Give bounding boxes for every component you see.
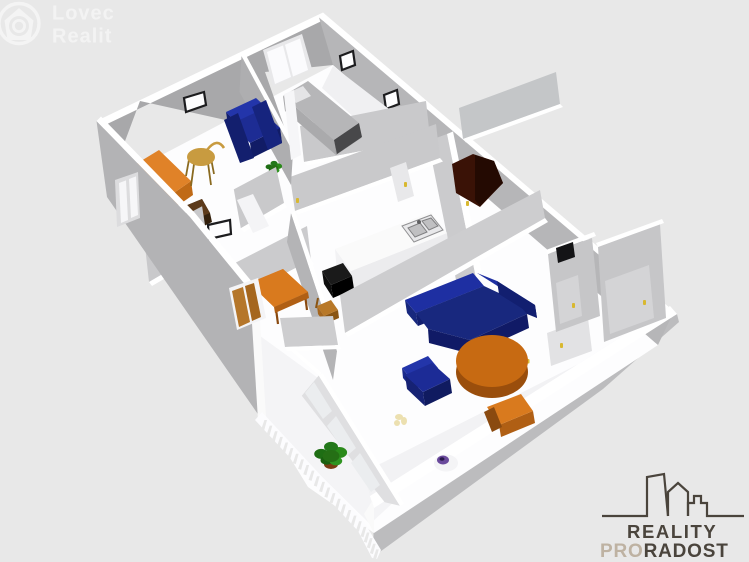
- svg-text:REALITY: REALITY: [627, 521, 717, 542]
- svg-text:Realit: Realit: [52, 26, 112, 48]
- svg-text:Lovec: Lovec: [52, 3, 115, 25]
- svg-text:PRORADOST: PRORADOST: [600, 541, 729, 562]
